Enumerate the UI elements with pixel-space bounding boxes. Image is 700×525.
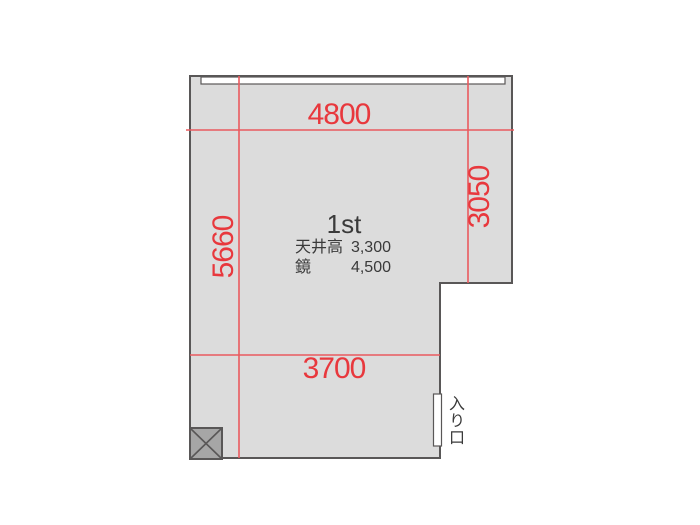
door-entrance bbox=[434, 394, 442, 446]
spec-label-ceiling: 天井高 bbox=[295, 239, 343, 256]
dimension-label-bottom: 3700 bbox=[264, 354, 404, 384]
dimension-label-left: 5660 bbox=[209, 177, 239, 317]
room-specs: 天井高 3,300 鏡 4,500 bbox=[295, 239, 391, 279]
spec-value-mirror: 4,500 bbox=[351, 259, 391, 276]
room-title: 1st bbox=[289, 210, 399, 238]
entrance-label: 入り口 bbox=[446, 395, 463, 446]
dimension-label-top: 4800 bbox=[269, 100, 409, 130]
dimension-label-right: 3050 bbox=[465, 127, 495, 267]
mirror-strip bbox=[201, 77, 505, 84]
spec-label-mirror: 鏡 bbox=[295, 259, 311, 276]
spec-row-ceiling: 天井高 3,300 bbox=[295, 239, 391, 256]
spec-value-ceiling: 3,300 bbox=[351, 239, 391, 256]
floor-plan-page: 4800 3700 5660 3050 1st 天井高 3,300 鏡 4,50… bbox=[0, 0, 700, 525]
spec-row-mirror: 鏡 4,500 bbox=[295, 259, 391, 276]
